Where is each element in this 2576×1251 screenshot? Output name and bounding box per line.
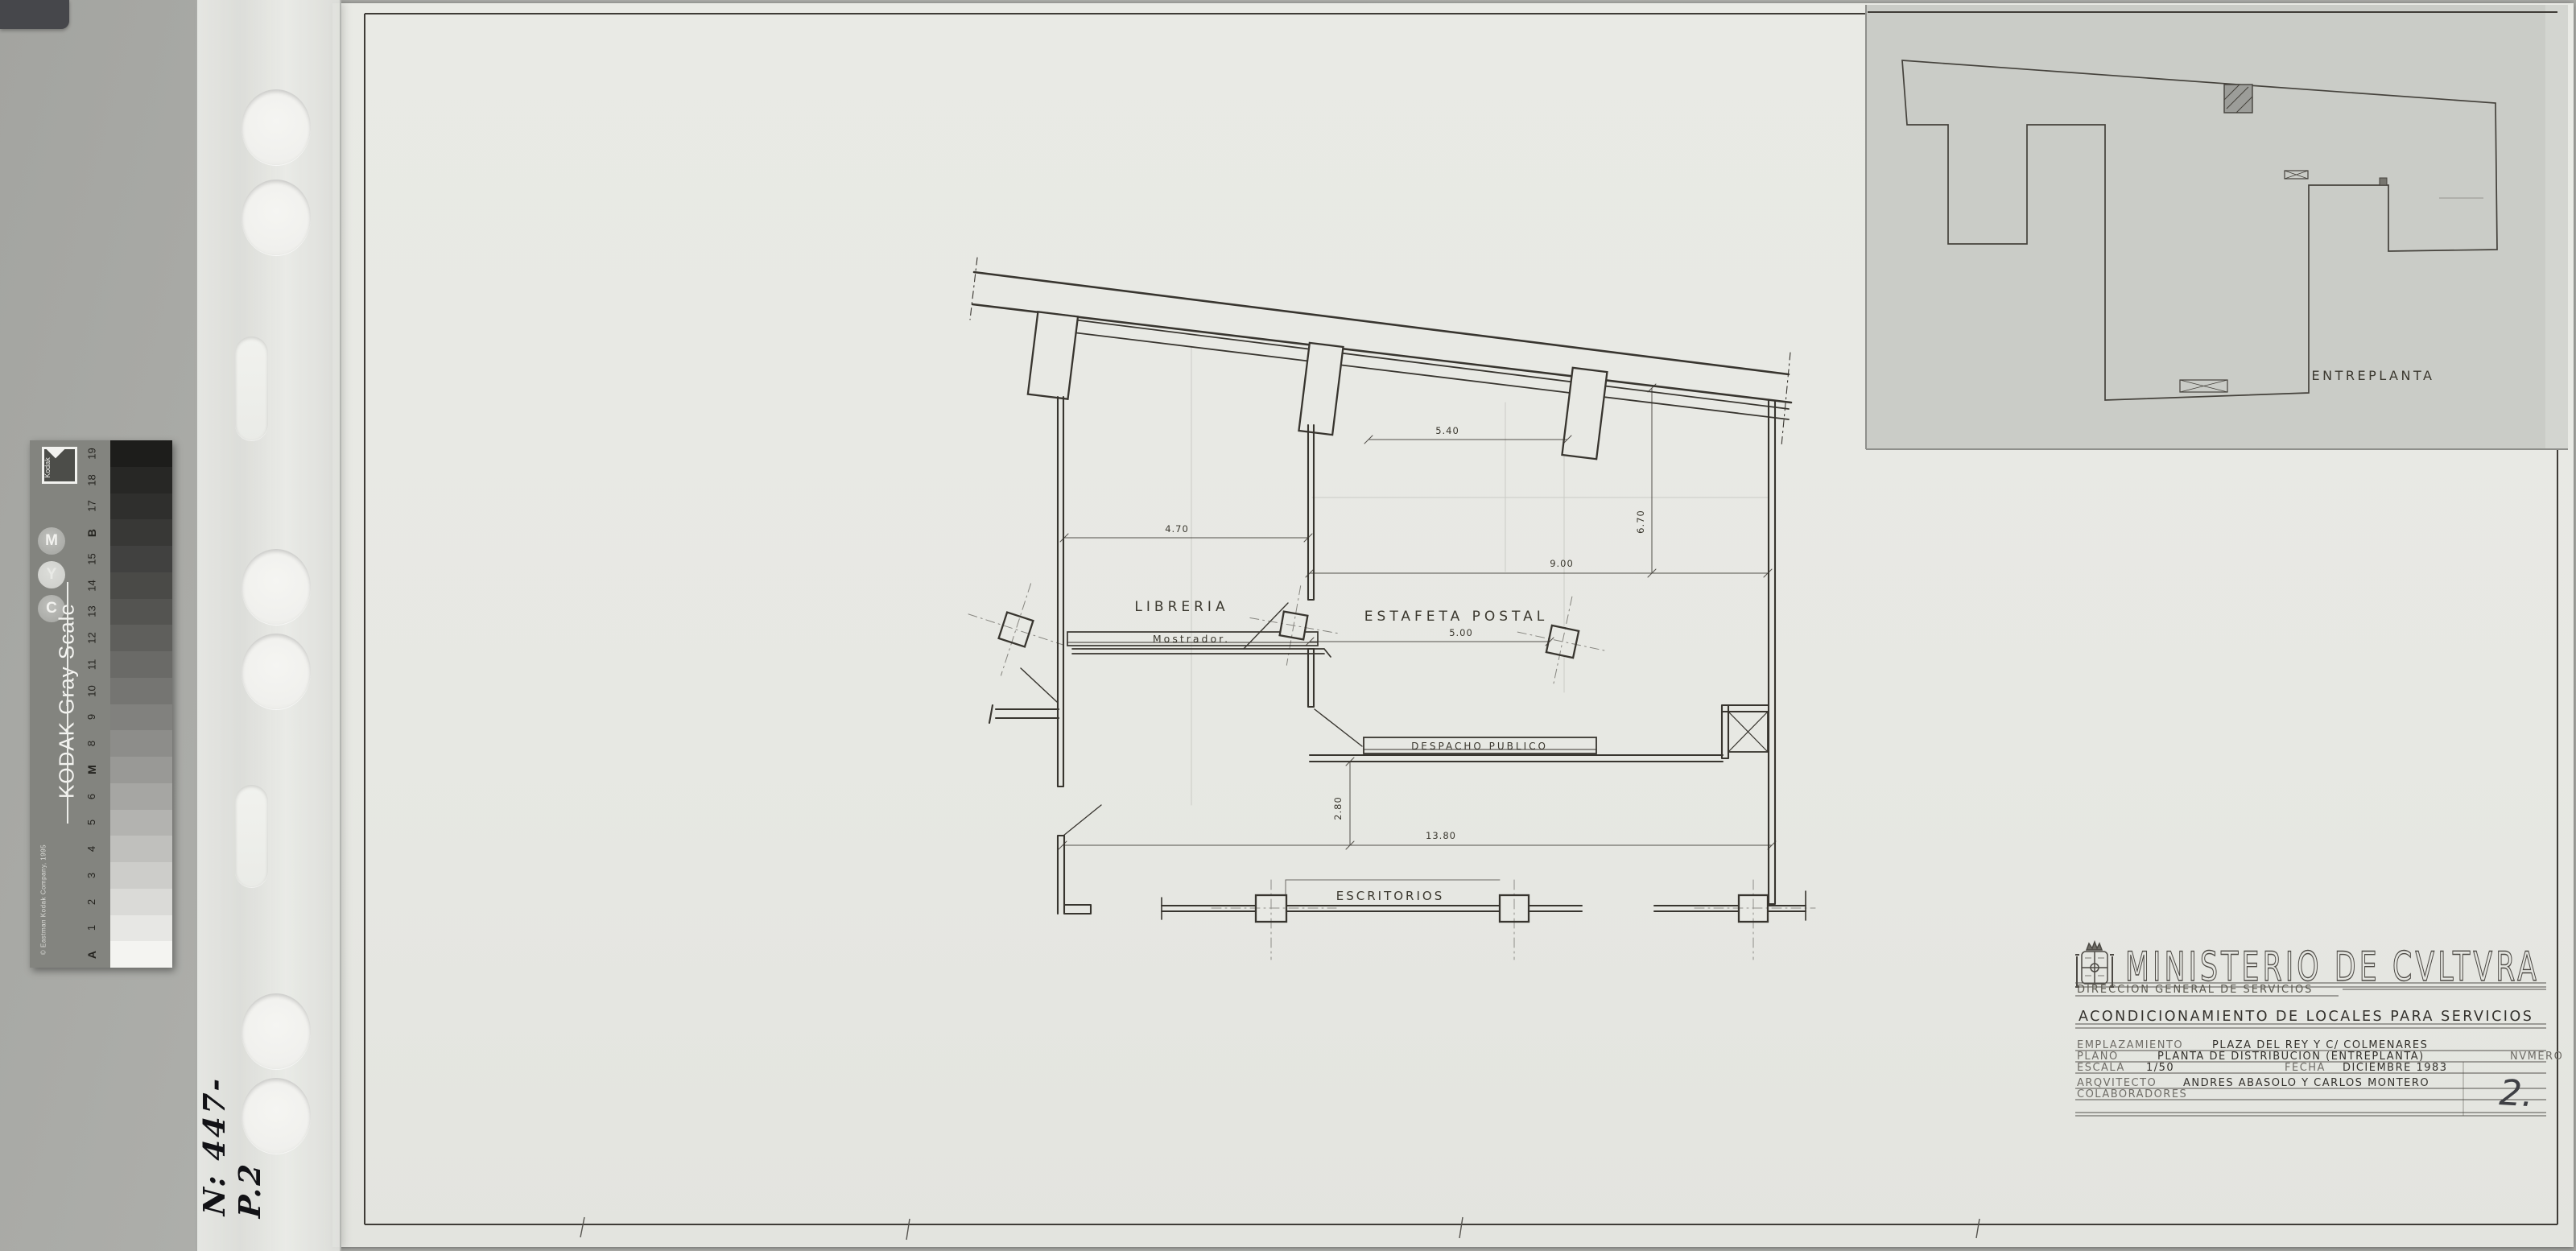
partition-wall	[1308, 425, 1314, 707]
dim-libreria-width: 4.70	[1165, 523, 1189, 535]
desk-label-escritorios: ESCRITORIOS	[1336, 889, 1444, 903]
stair-hatch-block	[2224, 85, 2252, 113]
department-line: DIRECCION GENERAL DE SERVICIOS	[2077, 984, 2313, 996]
inset-sheet-margin	[2545, 5, 2568, 449]
arquitecto-value: ANDRES ABASOLO Y CARLOS MONTERO	[2183, 1077, 2429, 1089]
libreria-left-wall	[989, 397, 1063, 787]
numero-value-handwritten: 2.	[2498, 1072, 2534, 1115]
numero-label: NVMERO	[2510, 1051, 2563, 1063]
door-leaf	[1315, 709, 1362, 746]
fecha-label: FECHA	[2285, 1062, 2326, 1074]
plan-labels: LIBRERIA Mostrador. ESTAFETA POSTAL DESP…	[1134, 425, 1646, 903]
room-label-libreria: LIBRERIA	[1134, 599, 1228, 615]
column-marker	[2380, 178, 2387, 185]
counter-label-mostrador: Mostrador.	[1153, 633, 1230, 645]
plano-label: PLANO	[2077, 1051, 2119, 1063]
scanned-blueprint-page: N: 447-P.2 Kodak MYC KODAK Gray Scale © …	[0, 0, 2576, 1251]
counter-label-despacho: DESPACHO PUBLICO	[1411, 741, 1548, 752]
emplazamiento-value: PLAZA DEL REY Y C/ COLMENARES	[2212, 1039, 2428, 1051]
arquitecto-label: ARQVITECTO	[2077, 1077, 2157, 1089]
dim-despacho-offset: 2.80	[1332, 796, 1344, 820]
right-wall	[1769, 401, 1775, 904]
project-line: ACONDICIONAMIENTO DE LOCALES PARA SERVIC…	[2079, 1009, 2533, 1025]
dim-estafeta-depth: 6.70	[1635, 510, 1646, 534]
elevator-shaft	[1722, 705, 1768, 758]
dim-total-length: 13.80	[1426, 830, 1456, 841]
title-block-text: DIRECCION GENERAL DE SERVICIOS ACONDICIO…	[2077, 984, 2563, 1115]
facade-centerline-ticks	[970, 258, 1790, 446]
shopfront-glazing	[1073, 320, 1789, 419]
facade-pilasters	[1028, 312, 1608, 459]
construction-lines	[1191, 346, 1768, 805]
bottom-left-wall	[1058, 836, 1091, 914]
dim-estafeta-length: 9.00	[1550, 558, 1574, 569]
escala-value: 1/50	[2146, 1062, 2174, 1074]
main-floor-plan: LIBRERIA Mostrador. ESTAFETA POSTAL DESP…	[953, 258, 1815, 960]
title-block: MINISTERIO DE CVLTVRA DIRECCION GENERAL …	[2075, 942, 2563, 1116]
escala-label: ESCALA	[2077, 1062, 2125, 1074]
door-leaf	[1063, 805, 1101, 836]
border-tick-marks	[580, 1217, 1979, 1240]
door-leaf	[1021, 668, 1057, 702]
plano-value: PLANTA DE DISTRIBUCION (ENTREPLANTA)	[2157, 1051, 2425, 1063]
colaboradores-label: COLABORADORES	[2077, 1088, 2187, 1100]
dim-estafeta-bay: 5.40	[1435, 425, 1459, 436]
inset-label-entreplanta: ENTREPLANTA	[2312, 368, 2435, 383]
inset-sheet: ENTREPLANTA	[1866, 5, 2568, 449]
emplazamiento-label: EMPLAZAMIENTO	[2077, 1039, 2183, 1051]
spain-coat-of-arms-icon	[2075, 942, 2114, 987]
drawing-linework: LIBRERIA Mostrador. ESTAFETA POSTAL DESP…	[0, 0, 2576, 1251]
facade-wall	[972, 272, 1791, 403]
fecha-value: DICIEMBRE 1983	[2343, 1062, 2448, 1074]
room-label-estafeta: ESTAFETA POSTAL	[1364, 609, 1548, 625]
dim-estafeta-half: 5.00	[1449, 627, 1473, 638]
